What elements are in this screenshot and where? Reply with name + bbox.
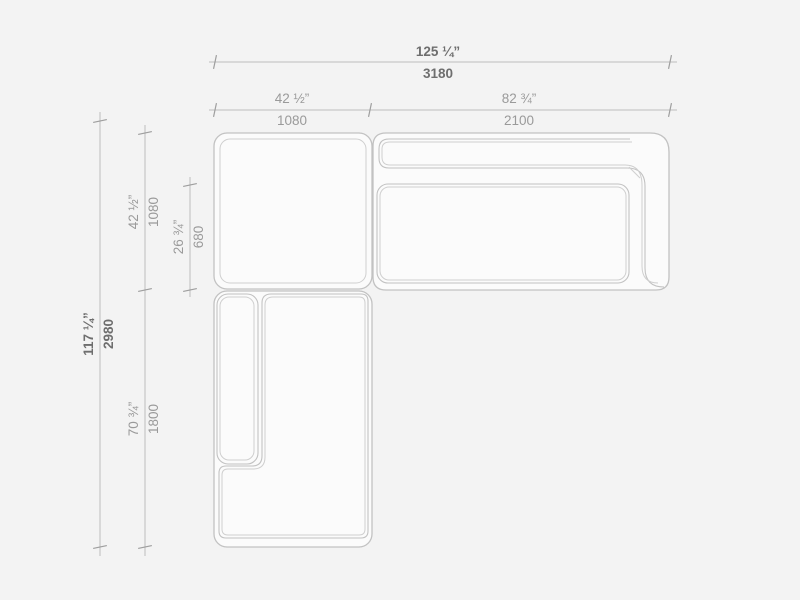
dim-left-section-width-inches: 42 ½” <box>275 91 310 107</box>
dim-overall-depth-mm: 2980 <box>101 319 117 349</box>
dim-upper-section-depth-mm: 1080 <box>146 197 162 227</box>
dim-left-section-width-mm: 1080 <box>277 113 307 129</box>
dim-overall-width-mm: 3180 <box>423 66 453 82</box>
dimension-ticks <box>93 55 671 548</box>
dim-seat-depth-inches: 26 ¾” <box>171 220 187 255</box>
dim-right-section-width-inches: 82 ¾” <box>502 91 537 107</box>
technical-drawing-canvas: 125 ¼” 3180 42 ½” 1080 82 ¾” 2100 117 ¼”… <box>0 0 800 600</box>
sofa-plan-svg <box>0 0 800 600</box>
dim-lower-section-depth-mm: 1800 <box>146 404 162 434</box>
bottom-chaise-module <box>214 291 372 547</box>
right-sofa-module <box>373 133 669 290</box>
dim-overall-depth-inches: 117 ¼” <box>81 312 97 356</box>
dim-upper-section-depth-inches: 42 ½” <box>126 195 142 230</box>
right-module-shell <box>373 133 669 290</box>
dim-right-section-width-mm: 2100 <box>504 113 534 129</box>
corner-seat-module <box>214 133 372 289</box>
dim-overall-width-inches: 125 ¼” <box>416 44 460 60</box>
dim-lower-section-depth-inches: 70 ¾” <box>126 402 142 437</box>
bottom-module-shell <box>214 291 372 547</box>
dim-seat-depth-mm: 680 <box>191 226 207 249</box>
corner-module-shell <box>214 133 372 289</box>
